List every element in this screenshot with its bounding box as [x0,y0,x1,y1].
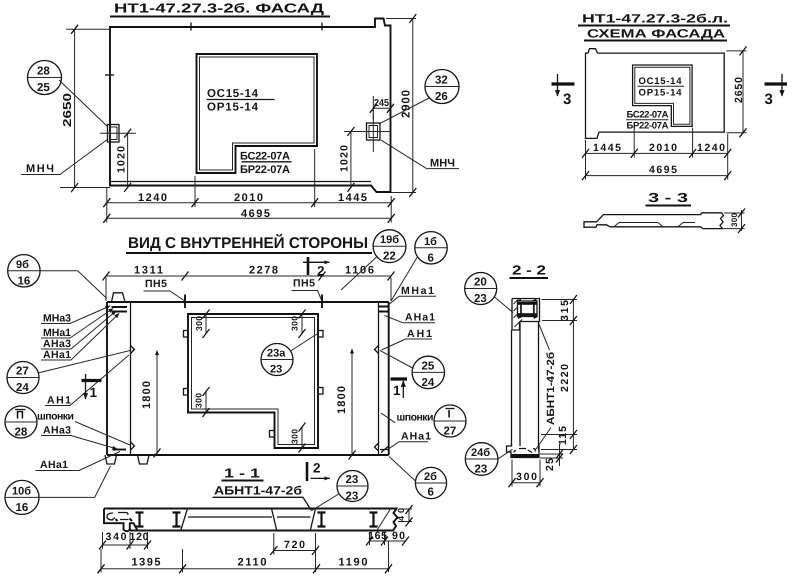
svg-text:25: 25 [37,82,50,94]
svg-text:2650: 2650 [733,77,745,103]
svg-text:315: 315 [559,300,571,321]
svg-text:16: 16 [16,502,29,514]
svg-text:1190: 1190 [339,556,368,568]
svg-text:ВИД С ВНУТРЕННЕЙ СТОРОНЫ: ВИД С ВНУТРЕННЕЙ СТОРОНЫ [128,233,368,252]
svg-text:1240: 1240 [138,192,167,204]
svg-text:СХЕМА ФАСАДА: СХЕМА ФАСАДА [587,27,725,41]
svg-text:1445: 1445 [338,192,367,204]
svg-text:НТ1-47.27.3-2б. ФАСАД: НТ1-47.27.3-2б. ФАСАД [114,1,325,16]
svg-text:2 - 2: 2 - 2 [512,263,546,278]
svg-text:22: 22 [383,251,396,263]
svg-text:25: 25 [544,458,556,471]
svg-text:300: 300 [730,212,739,227]
svg-text:2220: 2220 [559,364,571,392]
svg-text:28: 28 [15,427,28,439]
svg-text:28: 28 [37,66,50,78]
svg-text:23: 23 [346,491,359,503]
svg-text:1395: 1395 [132,556,161,568]
svg-text:6: 6 [428,487,434,499]
svg-text:4695: 4695 [241,208,270,220]
svg-text:27: 27 [16,366,29,378]
svg-text:2110: 2110 [238,556,267,568]
svg-text:24: 24 [16,382,29,394]
svg-text:ОР15-14: ОР15-14 [639,88,683,99]
svg-text:2010: 2010 [234,192,263,204]
svg-text:720: 720 [284,539,305,551]
svg-text:АБНТ1-47-2б: АБНТ1-47-2б [545,351,557,425]
svg-text:ОР15-14: ОР15-14 [207,102,259,114]
svg-text:2900: 2900 [401,90,413,118]
svg-text:АН1: АН1 [47,395,71,407]
svg-text:1 - 1: 1 - 1 [224,466,260,481]
svg-text:24б: 24б [471,447,490,459]
svg-text:300: 300 [194,393,204,408]
svg-text:300: 300 [290,316,300,331]
svg-text:АНа1: АНа1 [43,349,71,361]
svg-text:БР22-07А: БР22-07А [240,164,290,176]
svg-text:БС22-07А: БС22-07А [627,110,669,121]
svg-text:МНа3: МНа3 [43,313,71,325]
svg-text:1240: 1240 [697,142,725,154]
svg-text:16: 16 [18,275,31,287]
svg-text:1800: 1800 [336,386,348,414]
svg-text:2б: 2б [424,471,437,483]
svg-text:10б: 10б [12,486,31,498]
svg-text:1445: 1445 [593,142,621,154]
svg-text:340: 340 [106,531,127,543]
svg-text:23: 23 [346,474,359,486]
svg-text:3 - 3: 3 - 3 [648,190,688,205]
svg-text:1б: 1б [424,236,437,248]
svg-text:6: 6 [428,252,434,264]
svg-text:19б: 19б [380,234,399,246]
svg-text:МНа1: МНа1 [401,285,434,297]
svg-text:26: 26 [435,91,448,103]
svg-text:ПН5: ПН5 [145,278,167,290]
svg-text:АНа1: АНа1 [405,312,435,324]
svg-text:2: 2 [313,461,321,476]
svg-text:32: 32 [435,75,448,87]
svg-text:1106: 1106 [345,265,374,277]
svg-text:90: 90 [392,530,405,542]
svg-text:АН1: АН1 [407,328,432,340]
svg-text:1020: 1020 [339,145,351,172]
svg-text:ПН5: ПН5 [293,278,315,290]
svg-text:1: 1 [393,383,401,398]
svg-text:I: I [448,409,451,421]
svg-text:АНа1: АНа1 [401,431,431,443]
svg-text:2650: 2650 [62,93,74,127]
svg-text:165: 165 [368,530,387,542]
svg-text:НТ1-47.27.3-2б.л.: НТ1-47.27.3-2б.л. [582,12,728,26]
svg-text:3: 3 [563,91,571,108]
svg-text:23: 23 [270,364,282,376]
svg-text:23: 23 [475,464,488,476]
svg-text:АБНТ1-47-2б: АБНТ1-47-2б [214,484,302,498]
svg-text:П: П [16,410,24,422]
svg-text:2278: 2278 [249,265,278,277]
svg-text:ОС15-14: ОС15-14 [639,76,683,87]
svg-text:МНЧ: МНЧ [26,163,54,175]
svg-text:БС22-07А: БС22-07А [240,151,290,163]
svg-text:2010: 2010 [649,142,677,154]
svg-text:27: 27 [444,426,457,438]
svg-text:шпонки: шпонки [397,412,434,424]
svg-text:23а: 23а [267,348,286,360]
svg-text:1020: 1020 [116,146,128,173]
svg-text:АНа1: АНа1 [40,459,68,471]
svg-text:1800: 1800 [141,381,153,409]
svg-text:1: 1 [90,385,98,400]
svg-text:АНа3: АНа3 [43,425,71,437]
svg-text:300: 300 [290,429,300,444]
svg-text:25: 25 [422,360,435,372]
svg-text:245: 245 [374,98,389,109]
svg-text:ОС15-14: ОС15-14 [207,88,259,100]
svg-text:300: 300 [516,471,537,483]
svg-text:БР22-07А: БР22-07А [627,120,669,131]
svg-text:МНЧ: МНЧ [430,157,455,169]
svg-text:9б: 9б [16,259,29,271]
svg-text:23: 23 [474,293,487,305]
svg-text:шпонки: шпонки [37,411,74,423]
svg-text:20: 20 [474,277,487,289]
svg-text:24: 24 [422,377,435,389]
svg-text:4695: 4695 [649,164,677,176]
svg-text:115: 115 [557,426,569,445]
svg-text:120: 120 [130,531,149,543]
svg-text:300: 300 [194,316,204,331]
svg-text:2: 2 [317,264,325,279]
svg-text:3: 3 [765,91,773,108]
